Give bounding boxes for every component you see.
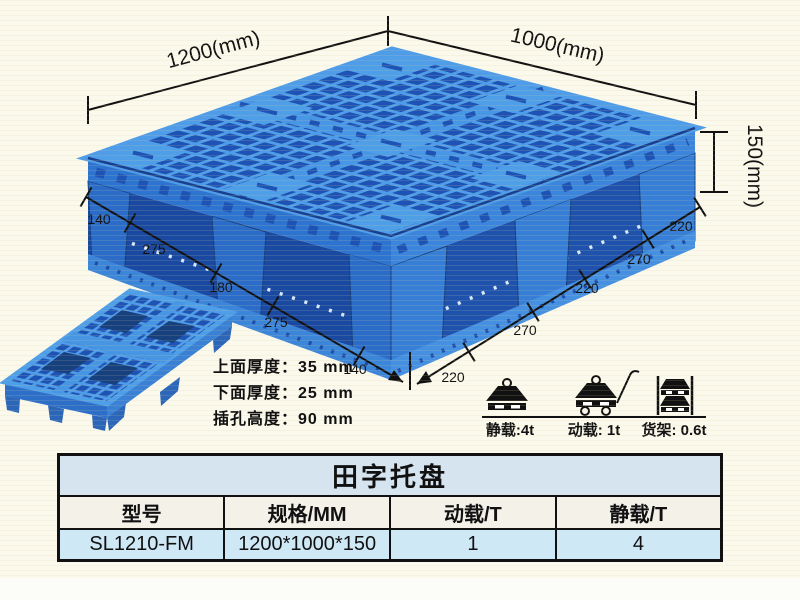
dim-seg-label: 180 [209, 279, 233, 295]
note-fork-height: 插孔高度：90 mm [213, 407, 354, 433]
dim-seg-label: 270 [513, 322, 537, 338]
cell-dynamic-load: 1 [390, 529, 556, 561]
small-pallet [5, 291, 232, 431]
rack-load-label: 货架: 0.6t [641, 421, 706, 439]
dim-width-label: 1000(mm) [508, 24, 606, 68]
note-top-thickness: 上面厚度：35 mm [213, 355, 354, 381]
load-rating-legend: 静载:4t 动载: 1t 货架: 0.6t [482, 371, 707, 439]
table-title: 田字托盘 [59, 455, 722, 497]
col-header-spec: 规格/MM [224, 496, 390, 529]
dim-seg-label: 220 [575, 280, 599, 296]
dim-seg-label: 275 [142, 241, 166, 257]
rack-load-icon [658, 376, 692, 415]
product-sheet: 1200(mm) 1000(mm) 150(mm) 140 275 [0, 0, 800, 600]
col-header-static: 静载/T [556, 496, 722, 529]
cell-spec: 1200*1000*150 [224, 529, 390, 561]
dim-seg-label: 220 [669, 218, 693, 234]
thickness-notes: 上面厚度：35 mm 下面厚度：25 mm 插孔高度：90 mm [213, 355, 354, 433]
dim-seg-label: 140 [87, 211, 111, 227]
dimension-height-150: 150(mm) [700, 124, 766, 208]
static-load-icon [486, 379, 528, 410]
dim-seg-label: 220 [441, 369, 465, 385]
table-row: SL1210-FM 1200*1000*150 1 4 [59, 529, 722, 561]
spec-table: 田字托盘 型号 规格/MM 动载/T 静载/T SL1210-FM 1200*1… [57, 453, 723, 562]
dim-seg-label: 275 [264, 314, 288, 330]
cell-model: SL1210-FM [59, 529, 225, 561]
static-load-label: 静载:4t [486, 421, 534, 439]
dim-seg-label: 270 [627, 251, 651, 267]
note-bottom-thickness: 下面厚度：25 mm [213, 381, 354, 407]
dynamic-load-icon [575, 371, 639, 415]
cell-static-load: 4 [556, 529, 722, 561]
dim-length-label: 1200(mm) [164, 26, 262, 73]
dynamic-load-label: 动载: 1t [568, 421, 621, 439]
pallet-illustration: 1200(mm) 1000(mm) 150(mm) 140 275 [0, 0, 800, 450]
bottom-margin [0, 578, 800, 600]
col-header-model: 型号 [59, 496, 225, 529]
col-header-dynamic: 动载/T [390, 496, 556, 529]
dim-height-label: 150(mm) [743, 124, 766, 208]
